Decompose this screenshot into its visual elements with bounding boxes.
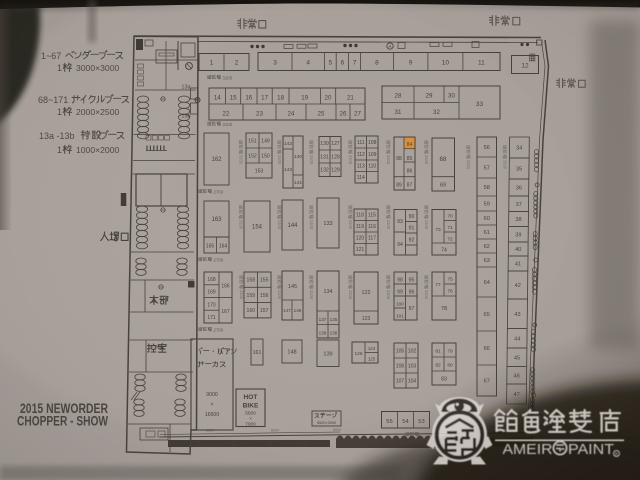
svg-text:PAINT: PAINT: [568, 441, 614, 458]
svg-text:R: R: [615, 452, 618, 457]
svg-text:AMEIR: AMEIR: [503, 441, 553, 458]
